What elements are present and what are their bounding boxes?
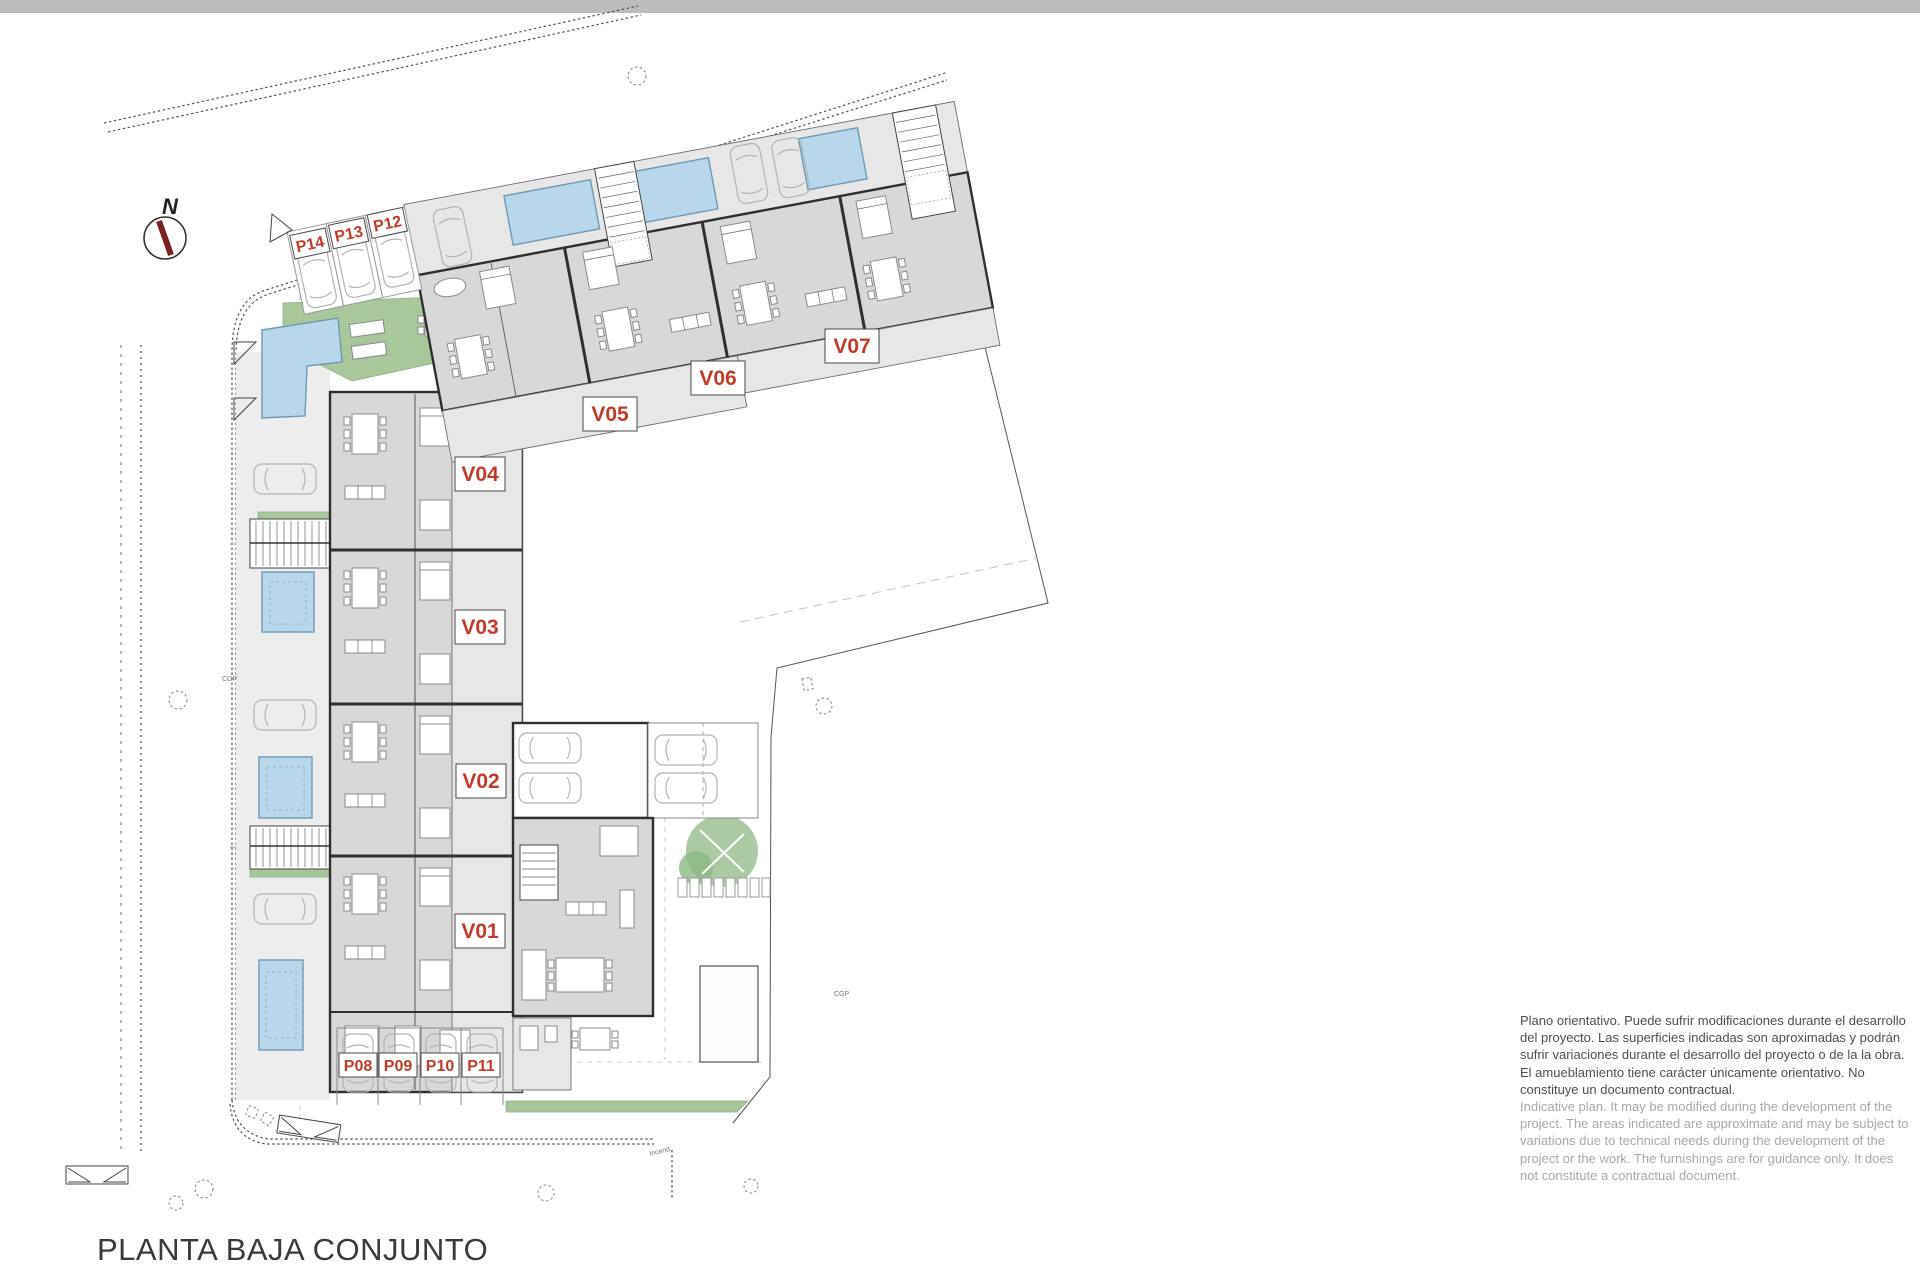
disclaimer-es-line: sufrir variaciones durante el desarrollo… [1520, 1046, 1910, 1063]
communal-area [513, 723, 758, 1090]
unit-label: V03 [461, 616, 498, 639]
upper-wing-building [404, 101, 1003, 462]
tree-icon [679, 815, 758, 887]
unit-label: V05 [591, 403, 629, 426]
unit-label: V07 [833, 335, 870, 358]
disclaimer-en-line: not constitute a contractual document. [1520, 1167, 1910, 1184]
left-wing-building [330, 392, 522, 1092]
outdoor-table [572, 1028, 618, 1050]
disclaimer-en-line: variations due to technical needs during… [1520, 1132, 1910, 1149]
parking-label: P10 [426, 1058, 455, 1075]
disclaimer-en-line: Indicative plan. It may be modified duri… [1520, 1098, 1910, 1115]
disclaimer-es-line: del proyecto. Las superficies indicadas … [1520, 1029, 1910, 1046]
parking-label: P08 [344, 1058, 373, 1075]
north-arrow-icon: N [144, 194, 186, 259]
disclaimer-es-line: El amueblamiento tiene carácter únicamen… [1520, 1064, 1910, 1081]
unit-label: V04 [461, 463, 499, 486]
parking-label: P09 [384, 1058, 413, 1075]
disclaimer-es-line: constituye un documento contractual. [1520, 1081, 1910, 1098]
cgp-note: CGP [222, 676, 238, 683]
parking-label: P11 [467, 1058, 495, 1075]
disclaimer-block: Plano orientativo. Puede sufrir modifica… [1520, 1012, 1910, 1184]
unit-label: V02 [462, 770, 499, 793]
street-lines [121, 345, 141, 1155]
unit-label: V01 [461, 920, 499, 943]
north-label: N [162, 194, 179, 219]
disclaimer-en-line: project or the work. The furnishings are… [1520, 1150, 1910, 1167]
cgp-note: CGP [834, 991, 850, 998]
unit-label: V06 [699, 367, 736, 390]
garden-pool [700, 966, 758, 1062]
disclaimer-es-line: Plano orientativo. Puede sufrir modifica… [1520, 1012, 1910, 1029]
sheet-title: PLANTA BAJA CONJUNTO [97, 1232, 488, 1268]
disclaimer-en-line: project. The areas indicated are approxi… [1520, 1115, 1910, 1132]
incend-note: Incend. [649, 1146, 673, 1158]
